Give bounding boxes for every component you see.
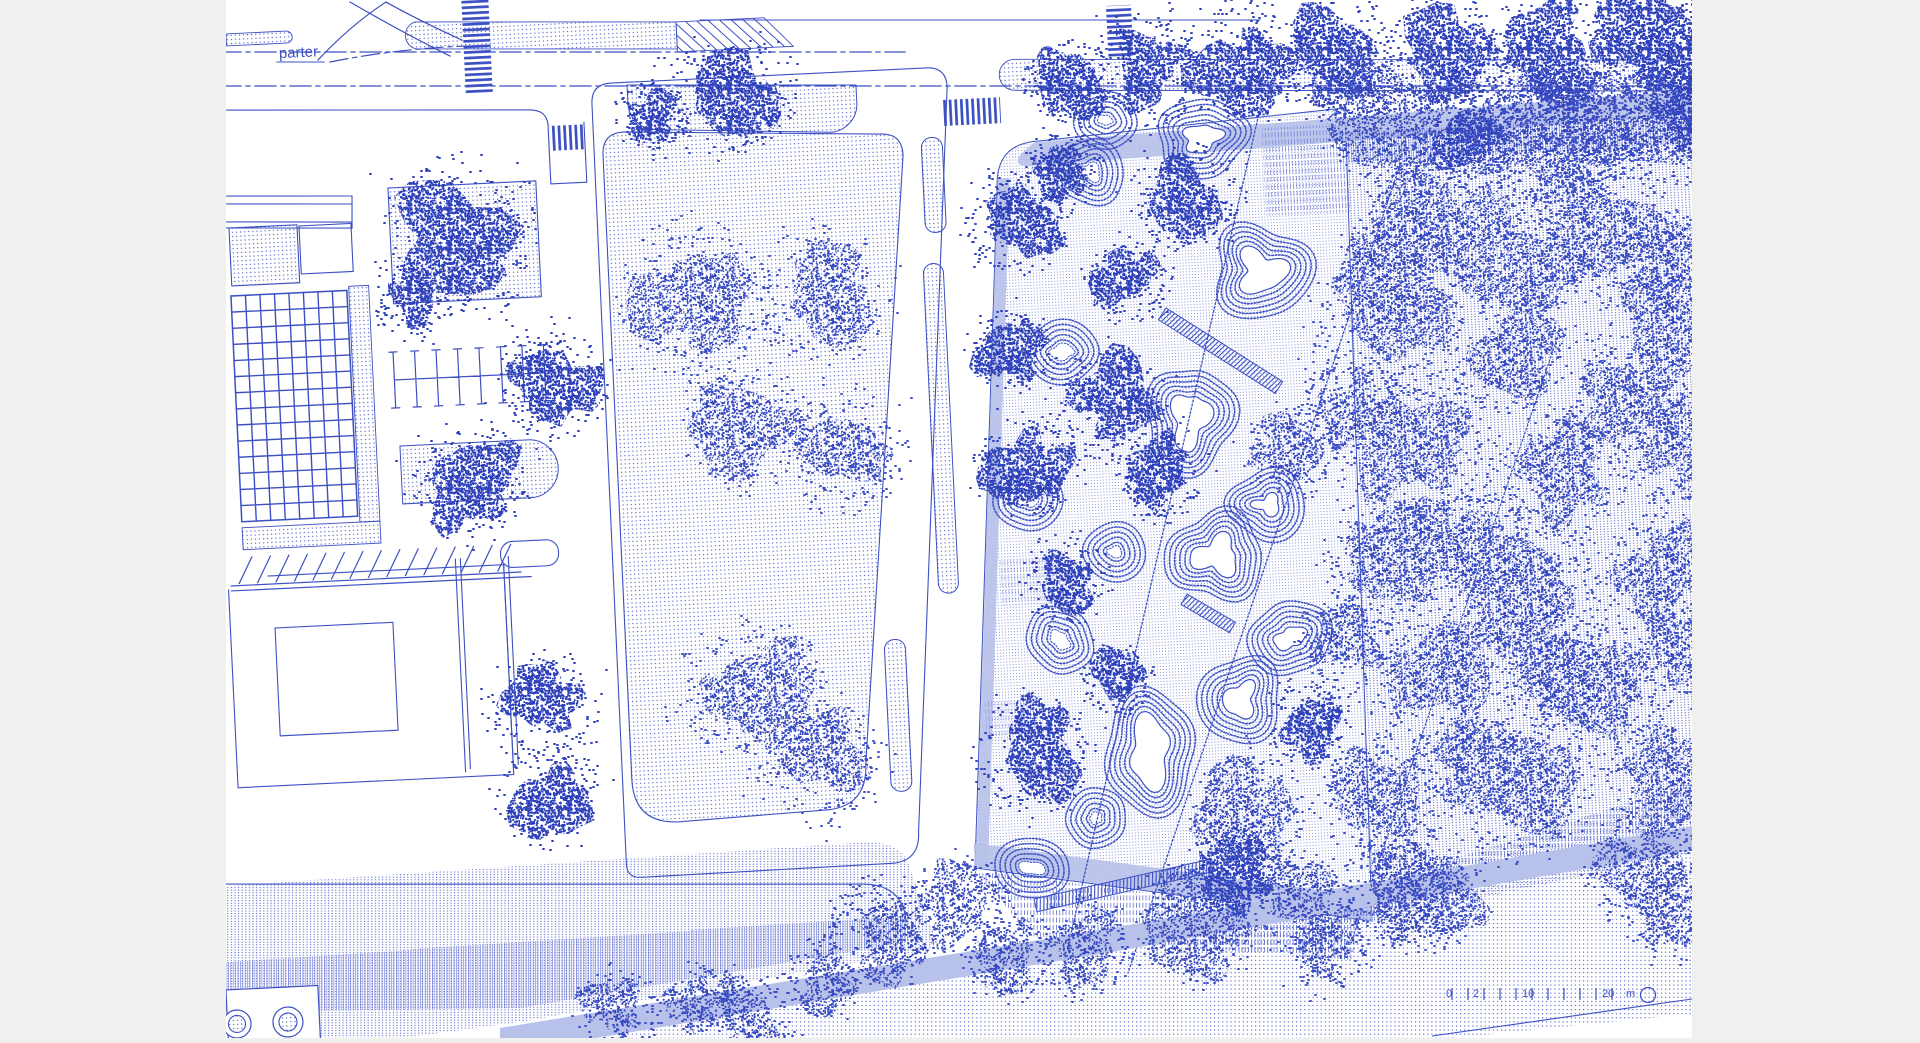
svg-text:2: 2 xyxy=(1473,988,1479,1000)
svg-text:20: 20 xyxy=(1602,988,1614,1000)
svg-text:parter: parter xyxy=(278,43,318,62)
svg-text:10: 10 xyxy=(1522,988,1534,1000)
svg-text:m: m xyxy=(1626,988,1635,1000)
svg-text:0: 0 xyxy=(1446,988,1452,1000)
